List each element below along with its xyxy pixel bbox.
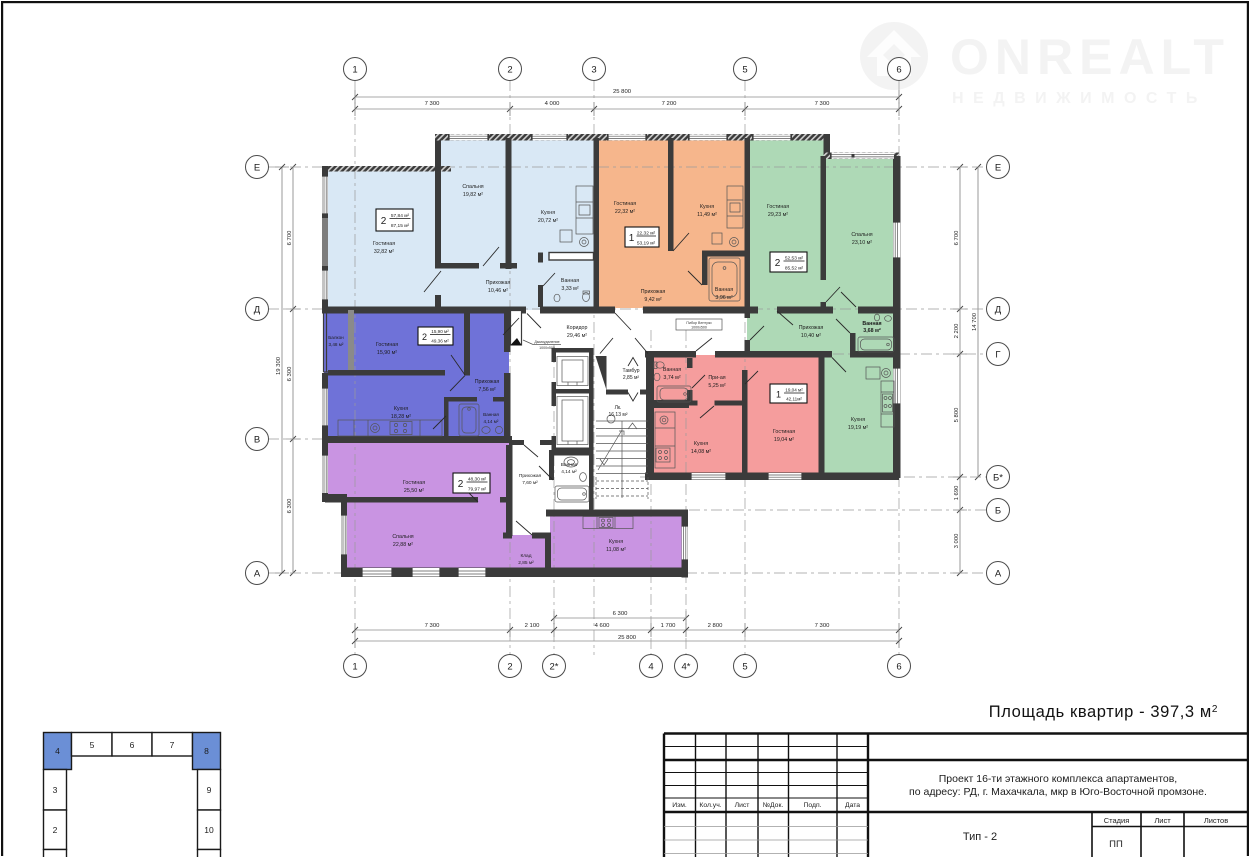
svg-text:1000х500: 1000х500: [539, 346, 555, 350]
svg-text:Б: Б: [995, 506, 1001, 517]
svg-text:Кухня: Кухня: [394, 406, 408, 412]
svg-text:3 000: 3 000: [954, 533, 960, 548]
svg-text:Прихожая: Прихожая: [641, 289, 666, 295]
svg-text:Гостиная: Гостиная: [376, 342, 398, 348]
svg-text:53,19 м²: 53,19 м²: [637, 241, 656, 247]
svg-text:2 800: 2 800: [708, 623, 723, 629]
svg-text:10,46 м²: 10,46 м²: [488, 288, 508, 294]
svg-text:25 800: 25 800: [613, 89, 632, 95]
svg-text:Д: Д: [254, 305, 261, 316]
svg-text:11,08 м²: 11,08 м²: [606, 547, 626, 553]
svg-text:Прихожая: Прихожая: [475, 379, 500, 385]
svg-text:Гостиная: Гостиная: [614, 201, 636, 207]
svg-text:2: 2: [381, 216, 387, 227]
svg-text:Тип - 2: Тип - 2: [963, 831, 997, 843]
svg-text:7: 7: [170, 740, 175, 750]
svg-text:1000х500: 1000х500: [691, 326, 707, 330]
svg-text:7 300: 7 300: [425, 623, 440, 629]
svg-text:При-ая: При-ая: [708, 375, 725, 381]
svg-text:Б*: Б*: [993, 473, 1003, 484]
svg-text:7 200: 7 200: [662, 101, 677, 107]
svg-text:2: 2: [422, 332, 427, 342]
svg-text:22,32 м²: 22,32 м²: [637, 231, 656, 237]
svg-text:НЕДВИЖИМОСТЬ: НЕДВИЖИМОСТЬ: [952, 90, 1207, 107]
svg-text:25,50 м²: 25,50 м²: [404, 488, 424, 494]
svg-text:3: 3: [591, 65, 596, 76]
svg-text:19,04 м²: 19,04 м²: [774, 437, 794, 443]
svg-text:18,28 м²: 18,28 м²: [391, 414, 411, 420]
svg-text:6 300: 6 300: [287, 366, 293, 381]
svg-text:по адресу: РД, г. Махачкала, м: по адресу: РД, г. Махачкала, мкр в Юго-В…: [909, 786, 1207, 798]
svg-text:Ванная: Ванная: [715, 287, 733, 293]
svg-text:22,32 м²: 22,32 м²: [615, 209, 635, 215]
svg-text:15,90 м²: 15,90 м²: [431, 329, 449, 334]
svg-text:Ванная: Ванная: [561, 278, 579, 284]
svg-text:5,25 м²: 5,25 м²: [708, 383, 725, 389]
svg-text:ONREALT: ONREALT: [950, 29, 1230, 85]
svg-text:Лист: Лист: [735, 802, 750, 809]
svg-text:Кухня: Кухня: [609, 539, 623, 545]
svg-text:6: 6: [130, 740, 135, 750]
svg-text:49,36 м²: 49,36 м²: [431, 339, 449, 344]
svg-text:Гостиная: Гостиная: [773, 429, 795, 435]
svg-text:2,85 м²: 2,85 м²: [518, 560, 534, 566]
svg-text:79,97 м²: 79,97 м²: [468, 487, 487, 493]
svg-text:Кухня: Кухня: [851, 417, 865, 423]
svg-text:11,49 м²: 11,49 м²: [697, 212, 717, 218]
svg-text:4: 4: [648, 662, 653, 673]
svg-text:2: 2: [53, 825, 58, 835]
svg-text:7,56 м²: 7,56 м²: [478, 387, 495, 393]
svg-text:25 800: 25 800: [618, 635, 637, 641]
svg-text:6: 6: [896, 65, 901, 76]
svg-text:1: 1: [776, 390, 781, 400]
svg-text:4: 4: [55, 746, 60, 756]
svg-text:2 100: 2 100: [525, 623, 540, 629]
svg-text:Изм.: Изм.: [672, 802, 687, 809]
svg-text:19,19 м²: 19,19 м²: [848, 425, 868, 431]
svg-text:4,14 м²: 4,14 м²: [484, 419, 499, 424]
svg-text:Кухня: Кухня: [700, 204, 714, 210]
svg-text:7 300: 7 300: [815, 101, 830, 107]
svg-text:9,42 м²: 9,42 м²: [644, 297, 661, 303]
svg-text:10,40 м²: 10,40 м²: [801, 333, 821, 339]
svg-text:1: 1: [352, 65, 357, 76]
svg-text:8: 8: [204, 746, 209, 756]
svg-text:Клад: Клад: [520, 553, 531, 559]
svg-text:2,85 м²: 2,85 м²: [623, 375, 640, 381]
svg-text:Кол.уч.: Кол.уч.: [699, 802, 721, 809]
svg-text:52,53 м²: 52,53 м²: [785, 256, 804, 262]
svg-text:Стадия: Стадия: [1104, 816, 1130, 825]
svg-text:7 300: 7 300: [425, 101, 440, 107]
svg-text:Спальня: Спальня: [392, 534, 413, 540]
svg-text:Дымоудаление: Дымоудаление: [534, 340, 559, 344]
svg-text:3,48 м²: 3,48 м²: [329, 342, 344, 347]
svg-text:29,46 м²: 29,46 м²: [567, 333, 587, 339]
svg-text:Ванная: Ванная: [663, 367, 681, 373]
svg-text:15,90 м²: 15,90 м²: [377, 350, 397, 356]
svg-text:4,14 м²: 4,14 м²: [561, 469, 577, 475]
svg-text:6 700: 6 700: [954, 230, 960, 245]
svg-text:Проект 16-ти этажного комплекс: Проект 16-ти этажного комплекса апартаме…: [939, 773, 1177, 785]
svg-text:5: 5: [90, 740, 95, 750]
svg-text:2: 2: [507, 65, 512, 76]
svg-text:Ванная: Ванная: [483, 412, 499, 417]
svg-text:ПП: ПП: [1109, 839, 1123, 850]
svg-text:Дата: Дата: [845, 802, 860, 809]
svg-text:3,96 м²: 3,96 м²: [715, 295, 732, 301]
svg-text:6 700: 6 700: [287, 230, 293, 245]
svg-text:48,30 м²: 48,30 м²: [468, 477, 487, 483]
svg-text:4 000: 4 000: [545, 101, 560, 107]
svg-text:Прихожая: Прихожая: [519, 473, 542, 479]
svg-text:3: 3: [53, 785, 58, 795]
svg-text:6: 6: [896, 662, 901, 673]
svg-text:19 300: 19 300: [276, 356, 282, 375]
svg-text:2: 2: [458, 479, 464, 490]
svg-text:23,10 м²: 23,10 м²: [852, 240, 872, 246]
svg-text:1 700: 1 700: [661, 623, 676, 629]
svg-text:Спальня: Спальня: [851, 232, 872, 238]
svg-text:Г: Г: [995, 350, 1000, 361]
svg-text:14 700: 14 700: [972, 312, 978, 331]
svg-text:5 800: 5 800: [954, 407, 960, 422]
svg-text:6 300: 6 300: [287, 498, 293, 513]
svg-text:7,60 м²: 7,60 м²: [522, 480, 538, 486]
svg-text:Кухня: Кухня: [694, 441, 708, 447]
svg-text:22,88 м²: 22,88 м²: [393, 542, 413, 548]
svg-text:Прихожая: Прихожая: [486, 280, 511, 286]
svg-text:3,68 м²: 3,68 м²: [863, 328, 881, 334]
svg-text:19,04 м²: 19,04 м²: [785, 388, 803, 393]
svg-text:Гостиная: Гостиная: [403, 480, 425, 486]
svg-text:5: 5: [742, 65, 747, 76]
svg-text:А: А: [254, 569, 261, 580]
svg-text:2 200: 2 200: [954, 323, 960, 338]
svg-text:7 300: 7 300: [815, 623, 830, 629]
svg-text:5: 5: [742, 662, 747, 673]
svg-text:Площадь квартир - 397,3 м2: Площадь квартир - 397,3 м2: [989, 703, 1218, 721]
svg-text:16,13 м²: 16,13 м²: [608, 412, 627, 418]
svg-text:2*: 2*: [550, 662, 559, 673]
svg-text:Коридор: Коридор: [567, 325, 588, 331]
svg-text:Д: Д: [995, 305, 1002, 316]
svg-text:Листов: Листов: [1204, 816, 1228, 825]
svg-text:10: 10: [204, 825, 214, 835]
svg-text:1: 1: [352, 662, 357, 673]
svg-text:57,84 м²: 57,84 м²: [391, 213, 410, 219]
svg-text:87,15 м²: 87,15 м²: [391, 223, 410, 229]
svg-text:6 300: 6 300: [613, 611, 628, 617]
svg-text:20,72 м²: 20,72 м²: [538, 218, 558, 224]
svg-text:4*: 4*: [682, 662, 691, 673]
svg-text:1: 1: [629, 233, 635, 244]
svg-text:Балкон: Балкон: [328, 335, 344, 340]
svg-text:В: В: [254, 435, 260, 446]
svg-text:Тамбур: Тамбур: [623, 368, 640, 374]
svg-text:Гостиная: Гостиная: [373, 241, 395, 247]
svg-text:29,23 м²: 29,23 м²: [768, 212, 788, 218]
svg-text:Ванная: Ванная: [862, 321, 881, 327]
svg-text:№Док.: №Док.: [763, 802, 784, 809]
svg-text:4 600: 4 600: [595, 623, 610, 629]
svg-text:Лк.: Лк.: [615, 405, 622, 411]
svg-text:Гостиная: Гостиная: [767, 204, 789, 210]
svg-text:Подп.: Подп.: [803, 802, 821, 809]
svg-text:Прихожая: Прихожая: [799, 325, 824, 331]
svg-text:14,08 м²: 14,08 м²: [691, 449, 711, 455]
svg-text:Пибор Вентузи: Пибор Вентузи: [686, 321, 711, 325]
svg-text:А: А: [995, 569, 1002, 580]
svg-text:32,82 м²: 32,82 м²: [374, 249, 394, 255]
svg-text:Е: Е: [254, 163, 260, 174]
svg-text:2: 2: [775, 258, 781, 269]
svg-text:85,52 м²: 85,52 м²: [785, 266, 804, 272]
svg-text:3,33 м²: 3,33 м²: [561, 286, 578, 292]
svg-text:Спальня: Спальня: [462, 184, 483, 190]
svg-text:Е: Е: [995, 163, 1001, 174]
svg-text:Ванная: Ванная: [561, 462, 578, 468]
svg-text:2: 2: [507, 662, 512, 673]
svg-text:9: 9: [207, 785, 212, 795]
svg-text:3,74 м²: 3,74 м²: [663, 375, 680, 381]
svg-text:19,82 м²: 19,82 м²: [463, 192, 483, 198]
svg-text:42,11м²: 42,11м²: [786, 397, 802, 402]
svg-text:Кухня: Кухня: [541, 210, 555, 216]
svg-text:1 690: 1 690: [954, 485, 960, 500]
svg-text:Лист: Лист: [1154, 816, 1171, 825]
